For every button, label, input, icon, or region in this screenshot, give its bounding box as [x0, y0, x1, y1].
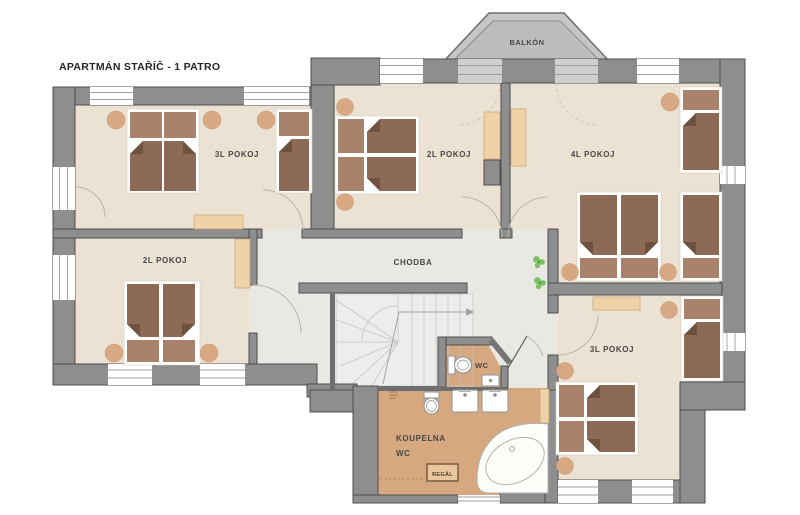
floor-plan-page: REGÁL APARTMÁN STAŘÍČ - 1 PATRO BALKÓN 3… [0, 0, 800, 515]
window [244, 87, 309, 105]
room-label-top-left: 3L POKOJ [215, 150, 259, 159]
wardrobe-top-center-room [484, 112, 500, 159]
wall-bottomright-east [680, 410, 705, 503]
bed-single-bottom-right-room [681, 296, 723, 381]
wall-protrusion-west [353, 386, 378, 503]
nightstand [661, 93, 679, 111]
bed-double-top-center-room [335, 116, 419, 194]
bed-pillow [338, 119, 364, 153]
toilet-bowl-wc [455, 357, 472, 373]
window [90, 87, 133, 105]
bed-single-top-right-room-north [680, 87, 722, 173]
cabinet-bathroom [540, 389, 549, 423]
plan-title: APARTMÁN STAŘÍČ - 1 PATRO [59, 60, 220, 73]
window [637, 59, 679, 83]
toilet-tank-bathroom [424, 392, 439, 398]
wall-protrusion-corner [310, 390, 353, 412]
window [720, 333, 745, 351]
wall-bottomright-step [680, 382, 745, 410]
wall-between-topcenter-topright [501, 83, 510, 229]
nightstand [107, 111, 125, 129]
wall-between-topleft-topcenter [311, 85, 334, 229]
bed-pillow [130, 112, 162, 138]
bed-double-top-left-room [127, 109, 199, 193]
corridor-label: CHODBA [394, 258, 433, 267]
regal-shelf: REGÁL [427, 464, 458, 481]
nightstand [557, 363, 574, 380]
floor-plan: REGÁL APARTMÁN STAŘÍČ - 1 PATRO BALKÓN 3… [0, 0, 800, 515]
wall-corridor-north-b [302, 229, 462, 238]
bed-single-top-right-room-south [680, 192, 722, 281]
bed-pillow [683, 90, 719, 110]
balcony-door [555, 59, 598, 83]
bed-double-bottom-right-room [556, 382, 638, 455]
bed-pillow [338, 157, 364, 191]
window [632, 480, 673, 503]
room-label-mid-left: 2L POKOJ [143, 256, 187, 265]
nightstand [337, 194, 354, 211]
bed-double-mid-left-room [124, 281, 200, 365]
nightstand [661, 302, 678, 319]
room-label-top-center: 2L POKOJ [427, 150, 471, 159]
wall-bathroom-south [353, 495, 458, 503]
wall-right [720, 59, 745, 410]
room-label-top-right: 4L POKOJ [571, 150, 615, 159]
bed-pillow [164, 112, 196, 138]
bathroom-label-line1: KOUPELNA [396, 434, 446, 443]
wall-midleft-east-b [249, 333, 257, 364]
regal-label: REGÁL [432, 471, 453, 478]
wall-step-chunk [311, 58, 380, 85]
wall-pillar-topcenter [484, 160, 500, 185]
window [200, 364, 245, 385]
bed-pillow [684, 299, 720, 319]
wc-label: WC [475, 361, 489, 370]
wall-corridor-north-a [53, 229, 262, 238]
wall-stairs-north [299, 283, 467, 293]
bed-pillow [163, 340, 195, 362]
wall-wc-east [501, 366, 508, 388]
toilet-tank-wc [448, 356, 455, 374]
balcony-door [458, 59, 502, 83]
shelf-bottom-right-room [593, 297, 640, 310]
window [108, 364, 152, 385]
balcony-label: BALKÓN [509, 38, 544, 47]
wall-midleft-south [53, 364, 317, 385]
wall-corridor-east [548, 229, 558, 283]
window [720, 166, 745, 184]
window [458, 495, 500, 503]
nightstand [105, 344, 123, 362]
bed-pillow [580, 258, 617, 278]
bathroom-label-line2: WC [396, 449, 411, 458]
window [558, 480, 598, 503]
bed-double-top-right-room [577, 192, 661, 281]
bed-single-top-left-room [276, 109, 312, 193]
window [53, 167, 75, 210]
window [380, 59, 423, 83]
bed-pillow [559, 385, 584, 417]
wall-bathroom-north-a [378, 386, 447, 391]
wardrobe-top-right-room [511, 109, 526, 166]
wall-bottomright-north [548, 283, 722, 295]
bed-pillow [279, 112, 309, 136]
wall-wc-west [438, 337, 446, 388]
nightstand [200, 344, 218, 362]
nightstand [257, 111, 275, 129]
wall-bottomright-west-a [548, 295, 558, 313]
shelf-top-left-room [194, 215, 243, 229]
wardrobe-mid-left-room [235, 239, 250, 288]
nightstand [562, 264, 579, 281]
nightstand [660, 264, 677, 281]
bed-pillow [621, 258, 658, 278]
nightstand [337, 99, 354, 116]
bed-pillow [683, 258, 719, 278]
bed-pillow [127, 340, 159, 362]
room-label-bottom-right: 3L POKOJ [590, 345, 634, 354]
nightstand [557, 458, 574, 475]
nightstand [203, 111, 221, 129]
bed-pillow [559, 421, 584, 452]
wall-stairs-west [330, 293, 335, 390]
window [53, 255, 75, 300]
